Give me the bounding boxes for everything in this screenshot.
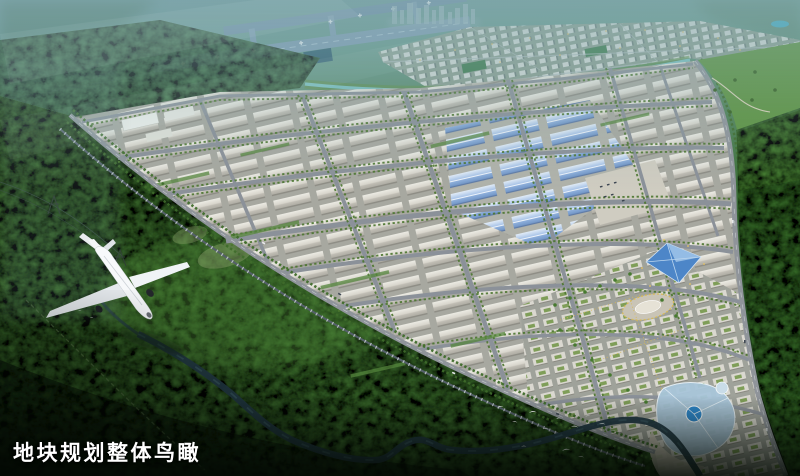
aerial-rendering: 地块规划整体鸟瞰 [0, 0, 800, 476]
scene-art [0, 0, 800, 476]
caption: 地块规划整体鸟瞰 [13, 437, 201, 467]
